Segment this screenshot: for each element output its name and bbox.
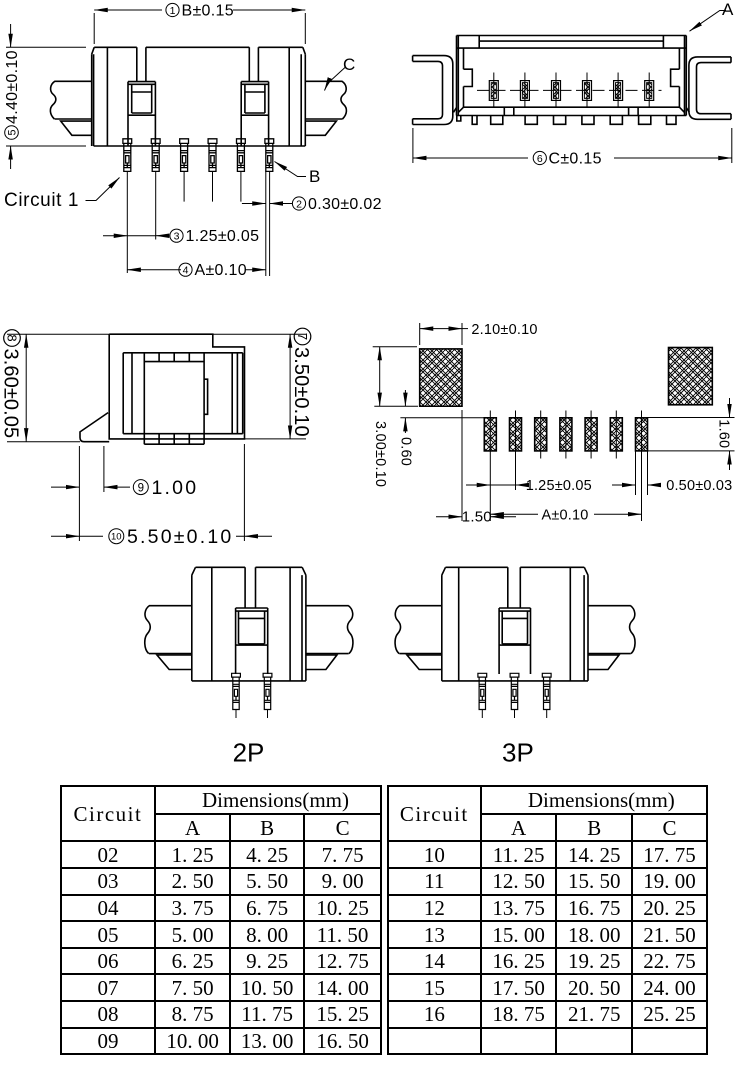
svg-text:4.40±0.10: 4.40±0.10 [4, 50, 21, 124]
svg-text:3.50±0.10: 3.50±0.10 [290, 347, 312, 437]
svg-text:A±0.10: A±0.10 [542, 507, 589, 523]
svg-text:0.30±0.02: 0.30±0.02 [308, 196, 382, 213]
svg-text:8: 8 [5, 334, 20, 341]
svg-text:4: 4 [183, 265, 189, 277]
svg-text:B: B [309, 167, 320, 186]
svg-text:2.10±0.10: 2.10±0.10 [471, 322, 537, 338]
svg-text:7: 7 [295, 333, 310, 340]
svg-text:1.25±0.05: 1.25±0.05 [186, 228, 260, 245]
svg-text:5.50±0.10: 5.50±0.10 [127, 526, 233, 548]
svg-text:A±0.10: A±0.10 [195, 262, 247, 279]
svg-text:A: A [722, 0, 734, 19]
svg-text:1.60: 1.60 [716, 419, 732, 448]
svg-text:C±0.15: C±0.15 [549, 150, 602, 167]
svg-text:B±0.15: B±0.15 [182, 2, 234, 19]
svg-text:1.00: 1.00 [152, 477, 199, 499]
svg-text:1: 1 [170, 5, 176, 17]
svg-text:Circuit 1: Circuit 1 [4, 190, 79, 211]
svg-text:2P: 2P [233, 738, 265, 768]
svg-text:3.60±0.05: 3.60±0.05 [0, 349, 22, 439]
svg-text:3.00±0.10: 3.00±0.10 [372, 421, 388, 487]
svg-text:9: 9 [138, 482, 144, 494]
svg-text:1.50: 1.50 [462, 509, 492, 526]
svg-text:10: 10 [111, 531, 122, 542]
svg-text:5: 5 [6, 129, 18, 135]
svg-text:1.25±0.05: 1.25±0.05 [526, 478, 592, 494]
svg-text:3P: 3P [502, 738, 534, 768]
svg-text:3: 3 [174, 231, 180, 243]
svg-text:6: 6 [537, 153, 543, 165]
svg-text:0.60: 0.60 [398, 437, 414, 466]
svg-text:0.50±0.03: 0.50±0.03 [666, 478, 732, 494]
svg-text:C: C [343, 55, 355, 74]
svg-text:2: 2 [296, 198, 302, 210]
